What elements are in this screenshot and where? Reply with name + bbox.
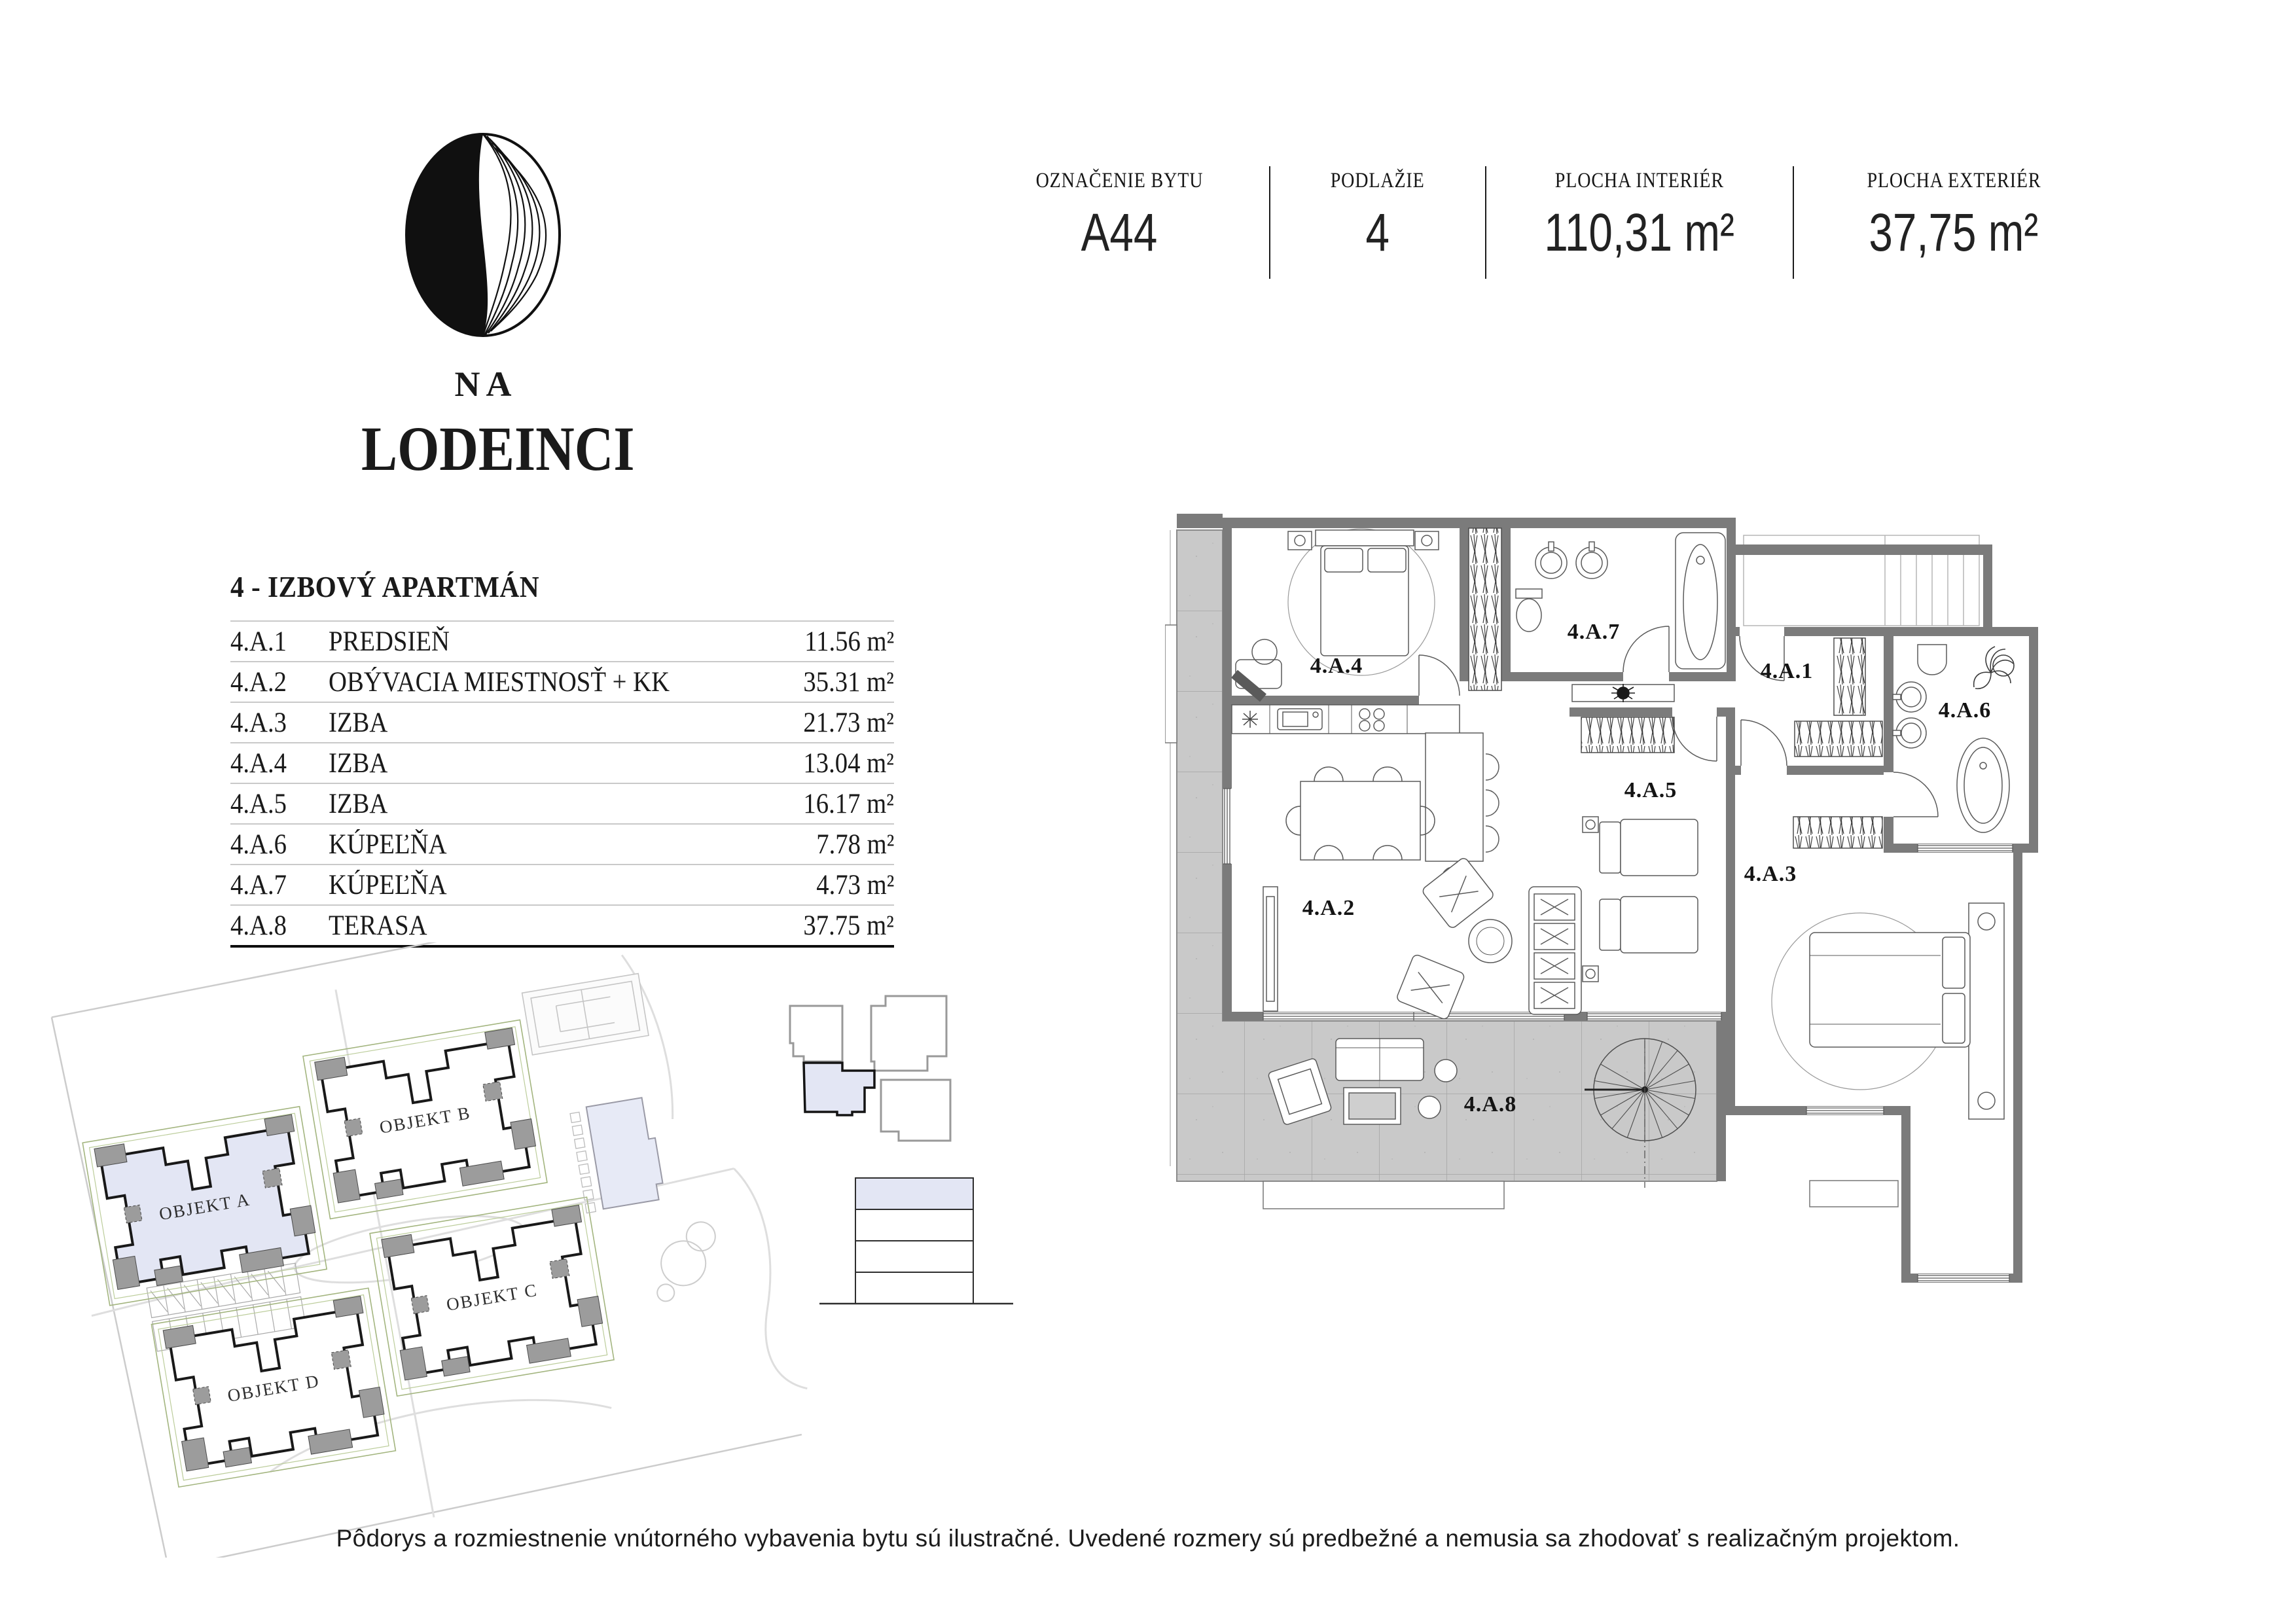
table-row: 4.A.3 IZBA 21.73 m²: [230, 702, 894, 742]
table-row: 4.A.8 TERASA 37.75 m²: [230, 904, 894, 945]
table-row: 4.A.1 PREDSIEŇ 11.56 m²: [230, 620, 894, 661]
floor-plan: 4.A.1 4.A.2 4.A.3 4.A.4 4.A.5 4.A.6 4.A.…: [1165, 504, 2055, 1315]
bedroom-4a3-furniture: [1772, 903, 2004, 1119]
bathroom-4a6-fixtures: [1893, 645, 2014, 832]
highlighted-unit: [804, 1063, 874, 1115]
interior-area-label: PLOCHA INTERIÉR: [1555, 169, 1724, 193]
row-code: 4.A.7: [230, 869, 287, 901]
living-room-furniture: [1263, 767, 1581, 1020]
building-objekt-d: OBJEKT D: [151, 1288, 395, 1487]
building-objekt-a: OBJEKT A: [82, 1107, 327, 1306]
tennis-court: [522, 974, 649, 1055]
bedroom-4a5-furniture: [1583, 817, 1698, 982]
row-code: 4.A.2: [230, 666, 287, 698]
logo-name: LODEINCI: [361, 412, 679, 485]
room-label-4a5: 4.A.5: [1624, 778, 1677, 802]
row-area: 37.75 m²: [804, 910, 894, 942]
row-name: IZBA: [329, 747, 387, 779]
room-label-4a7: 4.A.7: [1568, 620, 1621, 644]
logo-prefix: NA: [401, 364, 565, 404]
header-col-unit: OZNAČENIE BYTU A44: [982, 164, 1257, 281]
row-code: 4.A.3: [230, 707, 287, 739]
floor-stack-diagram: [818, 1175, 1014, 1312]
row-name: IZBA: [329, 707, 387, 739]
logo-mark: [401, 130, 565, 340]
row-area: 4.73 m²: [816, 869, 894, 901]
row-area: 13.04 m²: [804, 747, 894, 779]
floor-label: PODLAŽIE: [1331, 169, 1425, 193]
row-name: KÚPEĽŇA: [329, 829, 447, 861]
row-code: 4.A.8: [230, 910, 287, 942]
room-label-4a2: 4.A.2: [1302, 896, 1355, 920]
interior-area-value: 110,31 m²: [1545, 202, 1735, 264]
header-col-exterior-area: PLOCHA EXTERIÉR 37,75 m²: [1803, 164, 2104, 281]
row-area: 35.31 m²: [804, 666, 894, 698]
highlighted-floor: [855, 1178, 973, 1209]
room-label-4a8: 4.A.8: [1464, 1092, 1517, 1116]
unit-key-plan: [779, 988, 975, 1152]
apartment-title: 4 - IZBOVÝ APARTMÁN: [230, 569, 574, 604]
site-drawing: OBJEKT A OBJEKT B OBJEKT C OBJEKT D: [39, 942, 819, 1558]
row-name: OBÝVACIA MIESTNOSŤ + KK: [329, 666, 670, 698]
building-objekt-c: OBJEKT C: [370, 1197, 614, 1396]
room-label-4a3: 4.A.3: [1744, 862, 1797, 886]
table-row: 4.A.6 KÚPEĽŇA 7.78 m²: [230, 823, 894, 864]
row-code: 4.A.6: [230, 829, 287, 861]
header-col-floor: PODLAŽIE 4: [1280, 164, 1476, 281]
header-divider: [1485, 166, 1486, 279]
building-objekt-b: OBJEKT B: [303, 1020, 547, 1219]
exterior-area-label: PLOCHA EXTERIÉR: [1867, 169, 2041, 193]
brochure-page: NA LODEINCI OZNAČENIE BYTU A44 PODLAŽIE …: [0, 0, 2296, 1623]
table-row: 4.A.5 IZBA 16.17 m²: [230, 783, 894, 823]
room-table: 4.A.1 PREDSIEŇ 11.56 m² 4.A.2 OBÝVACIA M…: [230, 620, 894, 948]
row-code: 4.A.5: [230, 788, 287, 820]
row-area: 16.17 m²: [804, 788, 894, 820]
row-name: IZBA: [329, 788, 387, 820]
row-area: 7.78 m²: [816, 829, 894, 861]
room-label-4a1: 4.A.1: [1761, 659, 1814, 683]
disclaimer-text: Pôdorys a rozmiestnenie vnútorného vybav…: [0, 1525, 2296, 1552]
exterior-area-value: 37,75 m²: [1869, 202, 2039, 264]
floor-value: 4: [1366, 202, 1390, 264]
header-divider: [1793, 166, 1794, 279]
hall-sideboard: [1572, 684, 1674, 702]
palm-plant-icon: [1974, 647, 2014, 688]
row-code: 4.A.1: [230, 626, 287, 658]
table-row: 4.A.7 KÚPEĽŇA 4.73 m²: [230, 864, 894, 904]
table-row: 4.A.4 IZBA 13.04 m²: [230, 742, 894, 783]
table-row: 4.A.2 OBÝVACIA MIESTNOSŤ + KK 35.31 m²: [230, 661, 894, 702]
header-col-interior-area: PLOCHA INTERIÉR 110,31 m²: [1496, 164, 1784, 281]
trees: [647, 1220, 725, 1302]
unit-label: OZNAČENIE BYTU: [1035, 169, 1203, 193]
logo-name-text: LODEINCI: [361, 412, 634, 485]
row-name: KÚPEĽŇA: [329, 869, 447, 901]
room-label-4a4: 4.A.4: [1310, 654, 1363, 678]
row-name: TERASA: [329, 910, 427, 942]
row-area: 21.73 m²: [804, 707, 894, 739]
row-name: PREDSIEŇ: [329, 626, 450, 658]
unit-value: A44: [1081, 202, 1158, 264]
room-label-4a6: 4.A.6: [1939, 698, 1992, 722]
bathroom-4a7-fixtures: [1516, 533, 1725, 669]
row-area: 11.56 m²: [804, 626, 894, 658]
neighbour-building: [569, 1097, 666, 1213]
row-code: 4.A.4: [230, 747, 287, 779]
header-divider: [1269, 166, 1270, 279]
